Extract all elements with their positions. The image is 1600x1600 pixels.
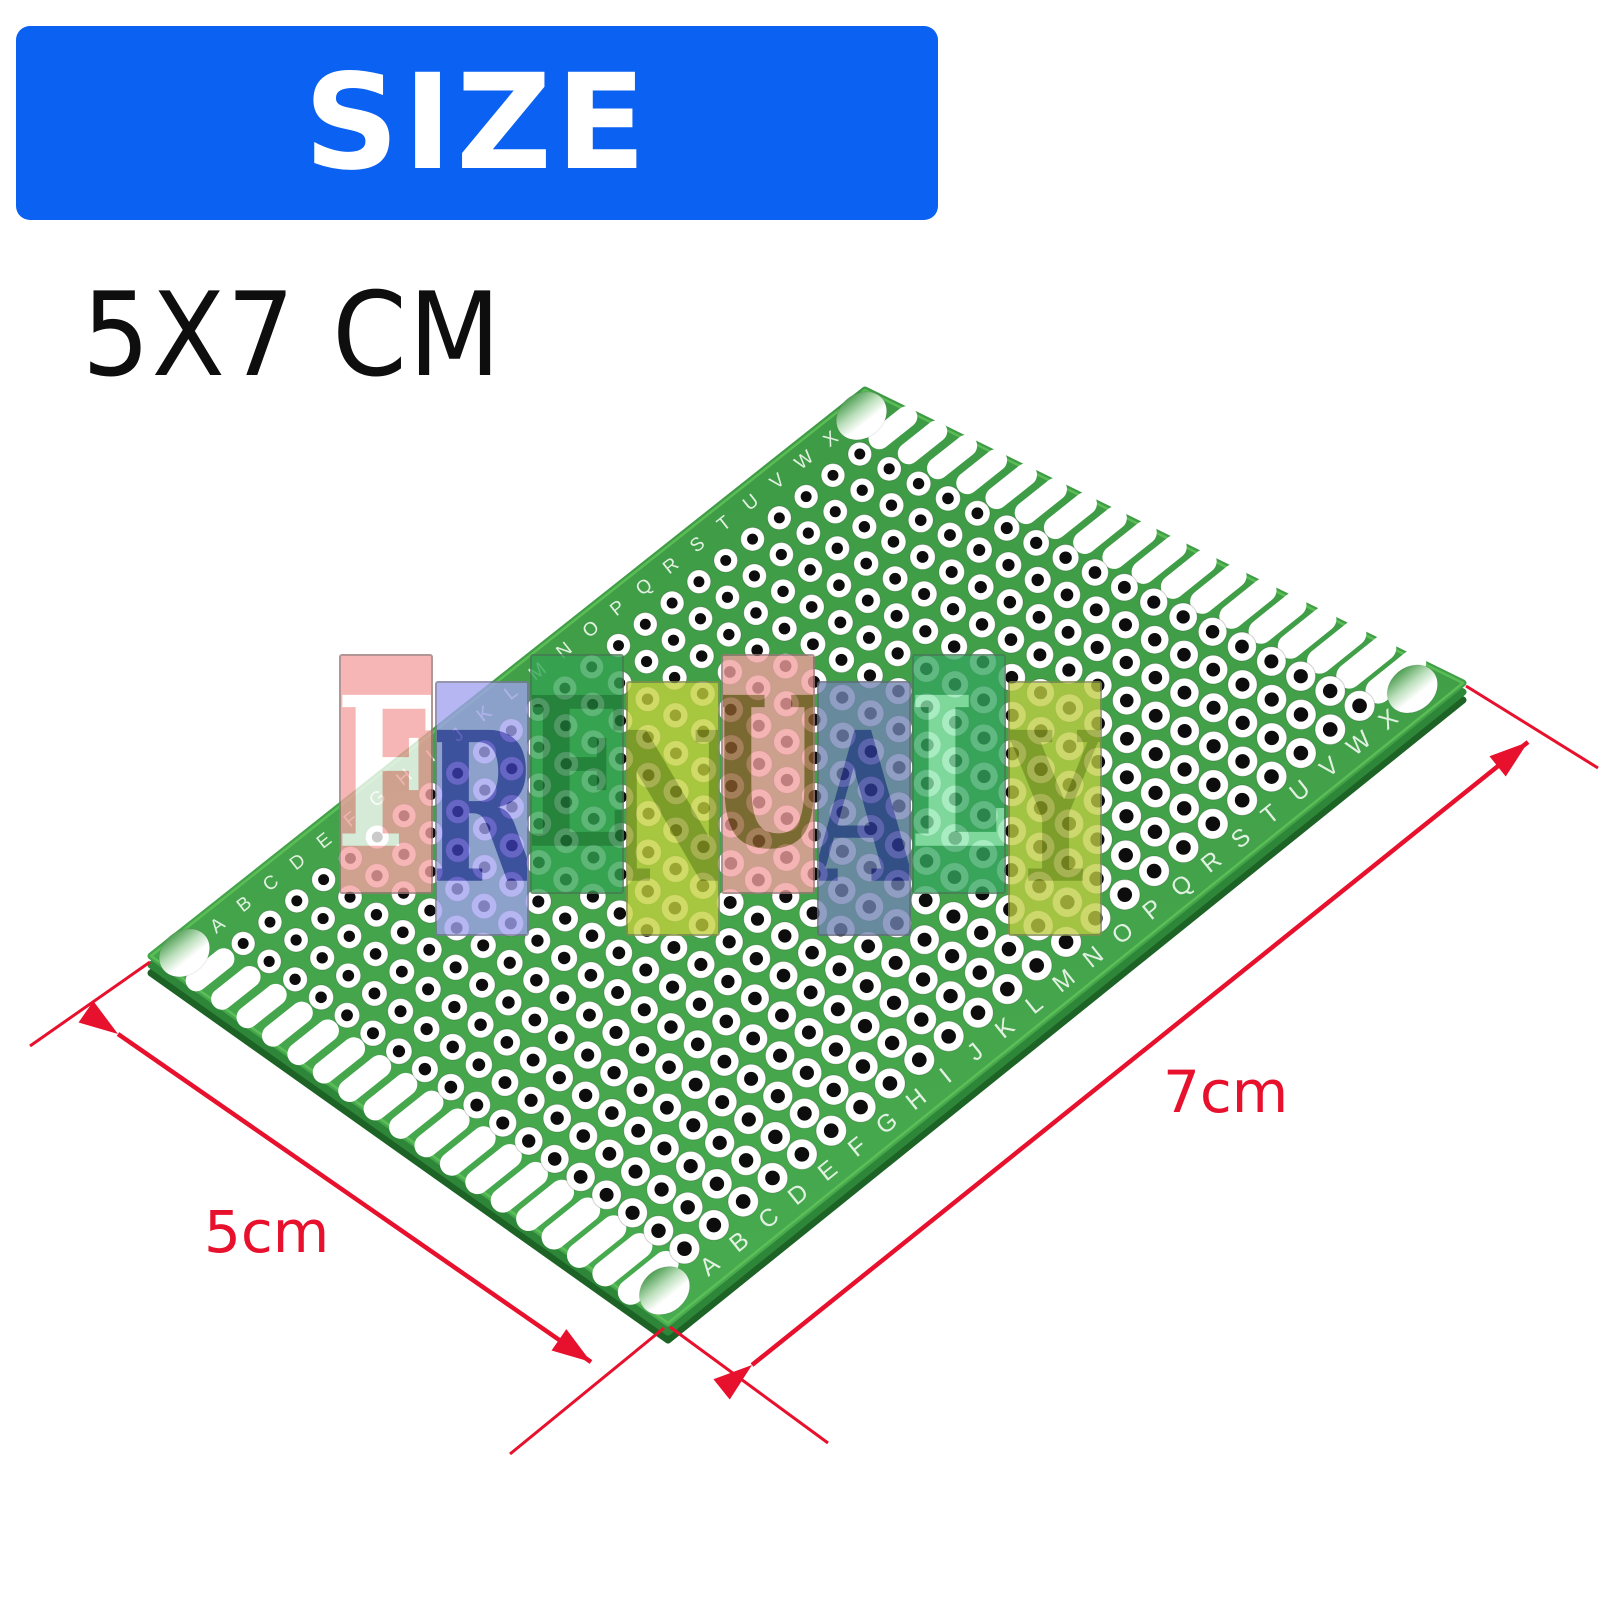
pcb-size-illustration: ABCDEFGHIJKLMNOPQRSTUVWXABCDEFGHIJKLMNOP…: [0, 0, 1600, 1600]
extension-line: [670, 1327, 828, 1443]
width-dimension-label: 5cm: [204, 1198, 329, 1266]
extension-line: [510, 1328, 664, 1454]
product-image: SIZE 5X7 CM ABCDEFGHIJKLMNOPQRSTUVWXABCD…: [0, 0, 1600, 1600]
length-dimension-label: 7cm: [1163, 1058, 1288, 1126]
extension-line: [30, 962, 150, 1046]
pcb-board: ABCDEFGHIJKLMNOPQRSTUVWXABCDEFGHIJKLMNOP…: [150, 382, 1463, 1340]
extension-line: [1466, 686, 1598, 768]
